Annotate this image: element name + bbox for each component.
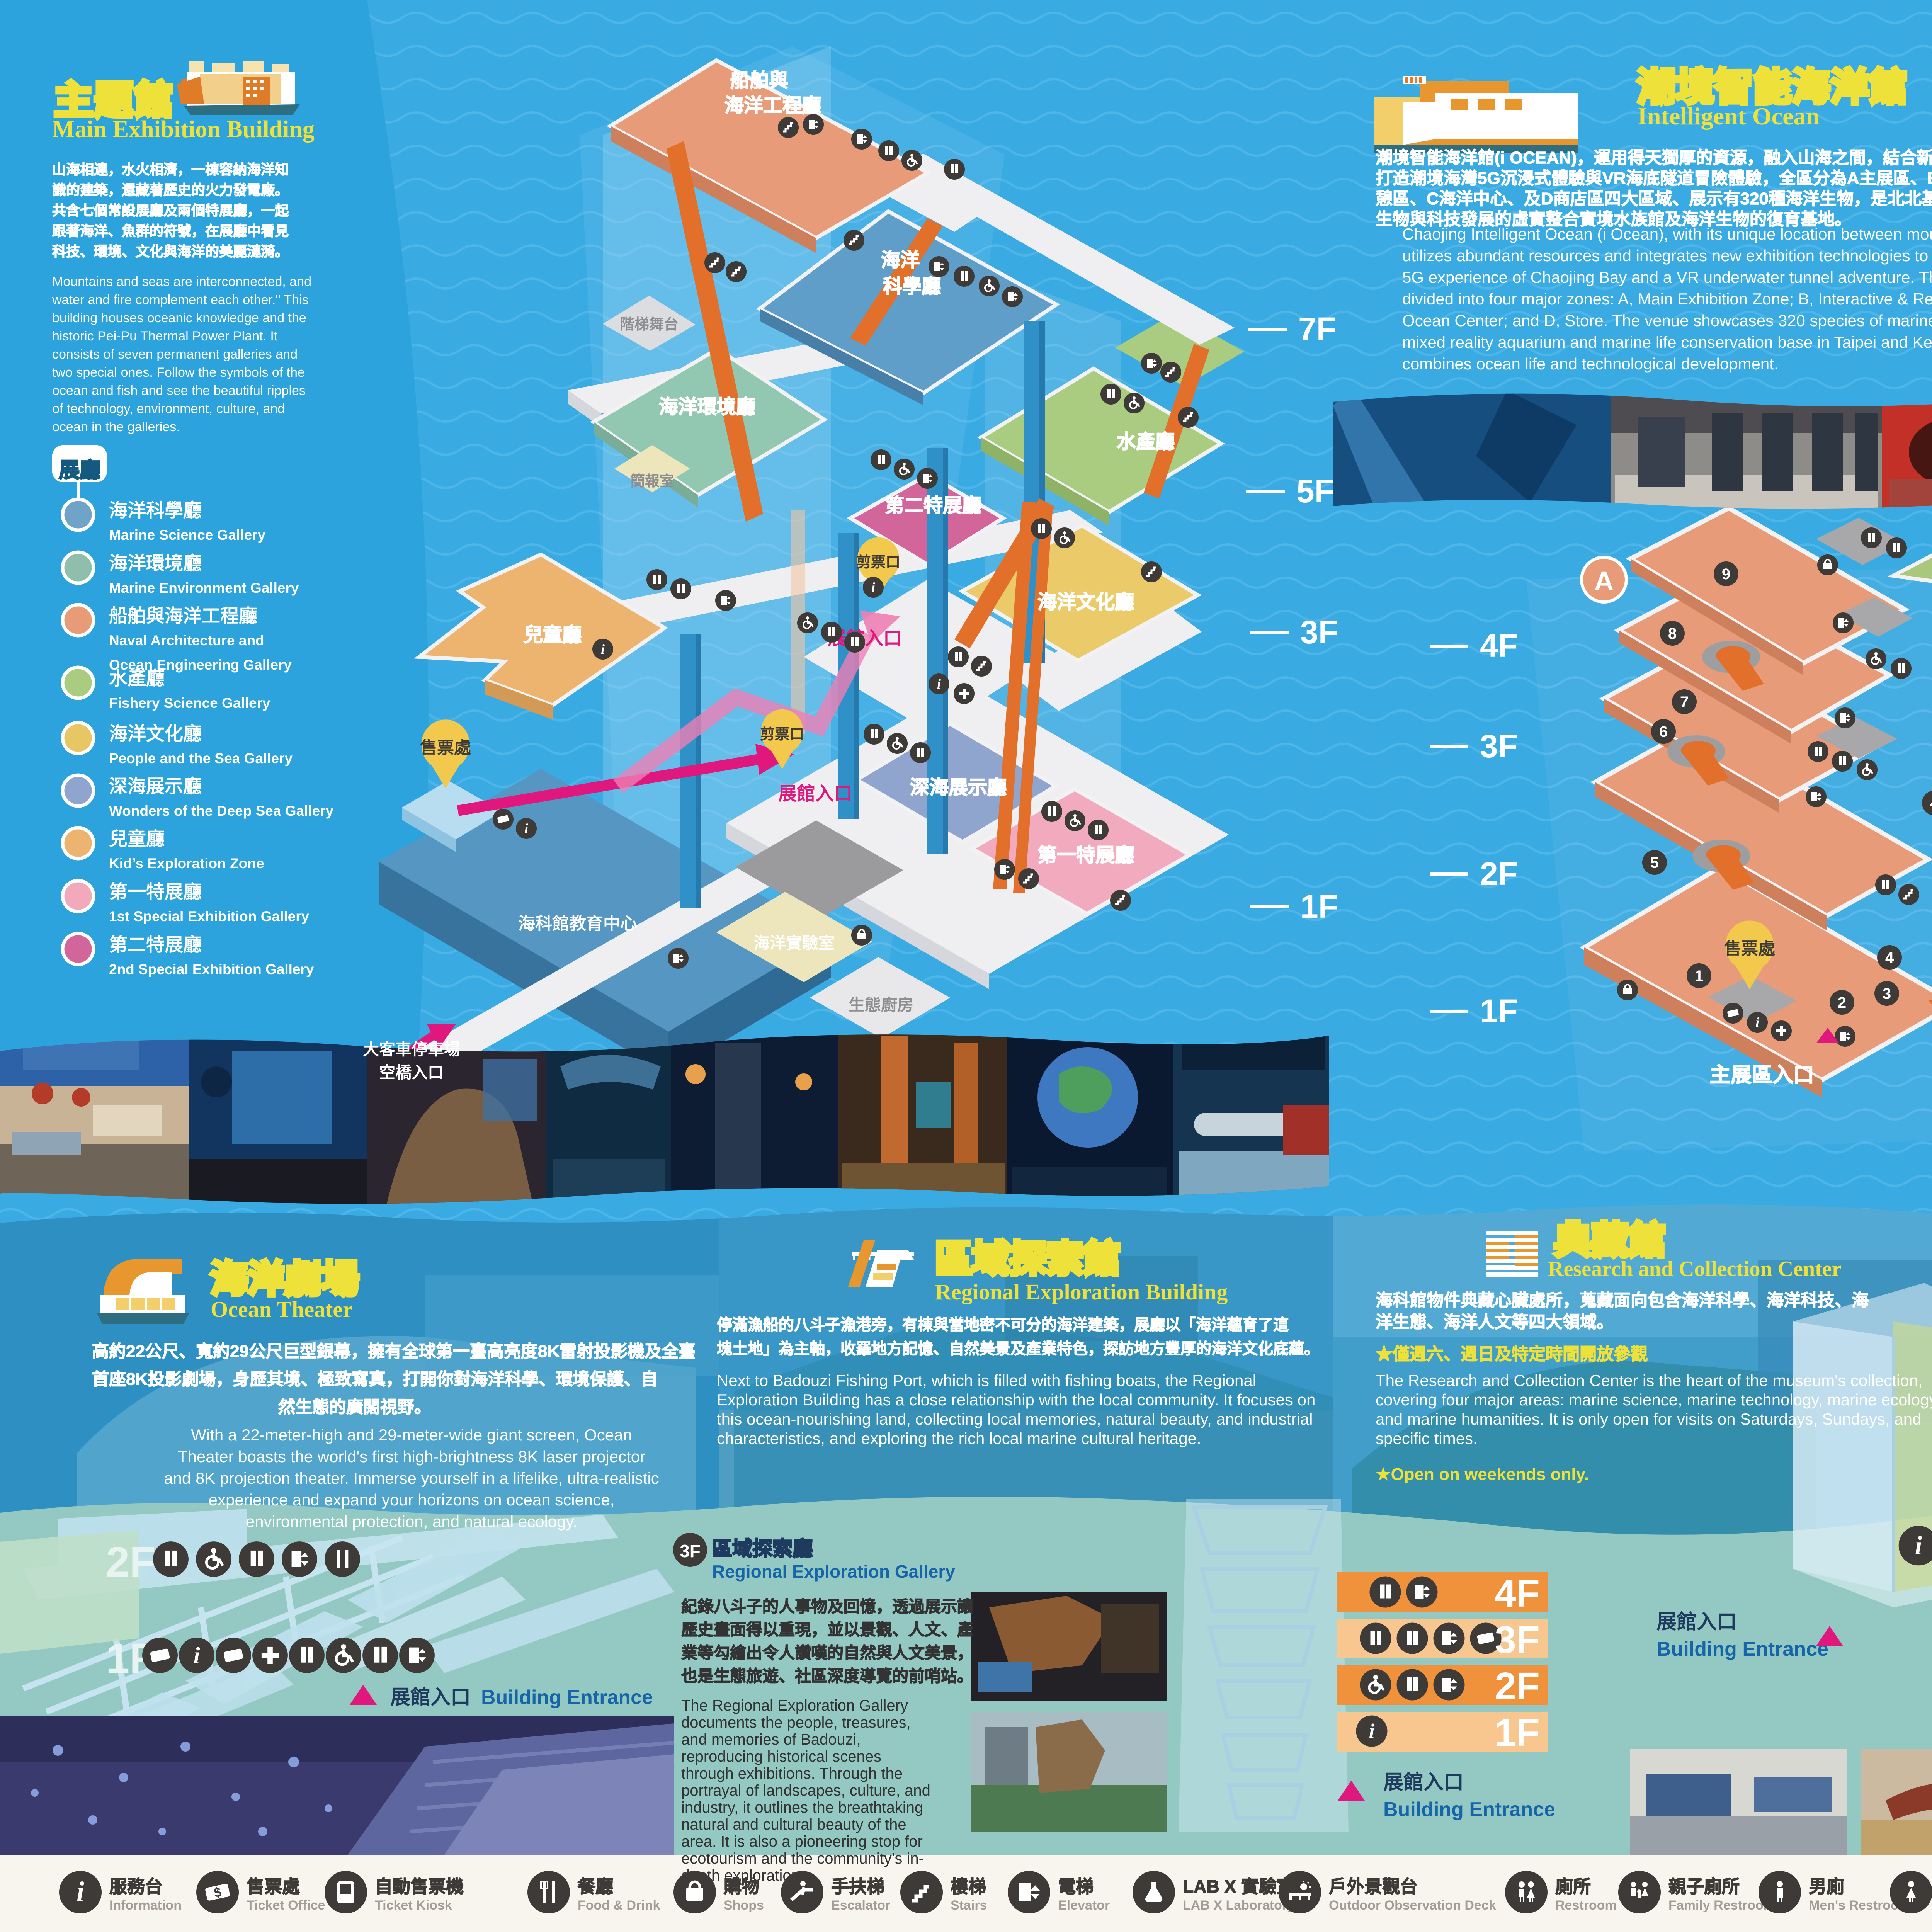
- svg-text:i: i: [77, 1876, 84, 1907]
- svg-text:科學廳: 科學廳: [883, 276, 941, 297]
- svg-text:4F: 4F: [1495, 1572, 1540, 1615]
- svg-text:2F: 2F: [1495, 1665, 1540, 1708]
- svg-text:水產廳: 水產廳: [1117, 431, 1175, 452]
- svg-text:海洋文化廳: 海洋文化廳: [1037, 591, 1134, 613]
- svg-text:第一特展廳: 第一特展廳: [1037, 844, 1134, 866]
- svg-text:2F: 2F: [106, 1538, 155, 1586]
- svg-text:2: 2: [1838, 994, 1846, 1011]
- svg-text:海洋: 海洋: [881, 249, 920, 271]
- svg-text:6: 6: [1659, 723, 1668, 740]
- svg-text:簡報室: 簡報室: [630, 473, 674, 490]
- svg-text:主展區入口: 主展區入口: [1710, 1063, 1814, 1087]
- svg-text:Building Entrance: Building Entrance: [481, 1686, 653, 1709]
- svg-text:兒童廳: 兒童廳: [524, 624, 582, 646]
- svg-text:階梯舞台: 階梯舞台: [620, 316, 679, 333]
- svg-text:生態廚房: 生態廚房: [849, 996, 913, 1014]
- svg-text:售票處: 售票處: [1724, 939, 1775, 958]
- svg-text:7: 7: [1680, 694, 1689, 711]
- svg-text:1: 1: [1695, 968, 1703, 985]
- svg-text:1F: 1F: [1480, 993, 1518, 1029]
- svg-text:剪票口: 剪票口: [856, 554, 900, 571]
- svg-text:海洋環境廳: 海洋環境廳: [659, 396, 755, 418]
- svg-text:售票處: 售票處: [420, 738, 471, 757]
- svg-text:8: 8: [1668, 625, 1677, 642]
- svg-text:3F: 3F: [1300, 614, 1338, 650]
- svg-text:Building Entrance: Building Entrance: [1656, 1638, 1828, 1660]
- svg-text:深海展示廳: 深海展示廳: [910, 777, 1007, 798]
- svg-text:3F: 3F: [1480, 728, 1518, 764]
- svg-text:4: 4: [1930, 795, 1932, 812]
- svg-text:海科館教育中心: 海科館教育中心: [518, 914, 637, 933]
- svg-text:1F: 1F: [1300, 888, 1338, 925]
- svg-text:3F: 3F: [680, 1541, 701, 1561]
- svg-text:展館入口: 展館入口: [1383, 1771, 1464, 1794]
- svg-text:4F: 4F: [1480, 628, 1518, 664]
- svg-text:海洋工程廳: 海洋工程廳: [724, 95, 821, 116]
- svg-text:A: A: [1594, 566, 1614, 596]
- svg-text:空橋入口: 空橋入口: [379, 1063, 444, 1082]
- svg-text:5: 5: [1650, 854, 1659, 871]
- svg-text:4: 4: [1885, 949, 1894, 966]
- svg-text:9: 9: [1722, 566, 1730, 583]
- svg-text:大客車停車場: 大客車停車場: [363, 1040, 460, 1058]
- svg-text:展館入口: 展館入口: [390, 1686, 471, 1709]
- svg-text:展館入口: 展館入口: [1656, 1611, 1737, 1633]
- svg-text:剪票口: 剪票口: [760, 726, 804, 743]
- svg-text:7F: 7F: [1298, 311, 1336, 347]
- svg-text:2F: 2F: [1480, 855, 1518, 892]
- svg-text:第二特展廳: 第二特展廳: [885, 495, 981, 516]
- svg-text:3F: 3F: [1495, 1618, 1540, 1662]
- svg-text:展館入口: 展館入口: [778, 784, 852, 804]
- svg-text:1F: 1F: [1495, 1711, 1540, 1754]
- svg-text:Building Entrance: Building Entrance: [1383, 1798, 1555, 1821]
- svg-text:海洋實驗室: 海洋實驗室: [753, 934, 835, 952]
- svg-text:船舶與: 船舶與: [730, 70, 788, 91]
- svg-text:5F: 5F: [1296, 473, 1334, 509]
- svg-text:3: 3: [1883, 985, 1891, 1002]
